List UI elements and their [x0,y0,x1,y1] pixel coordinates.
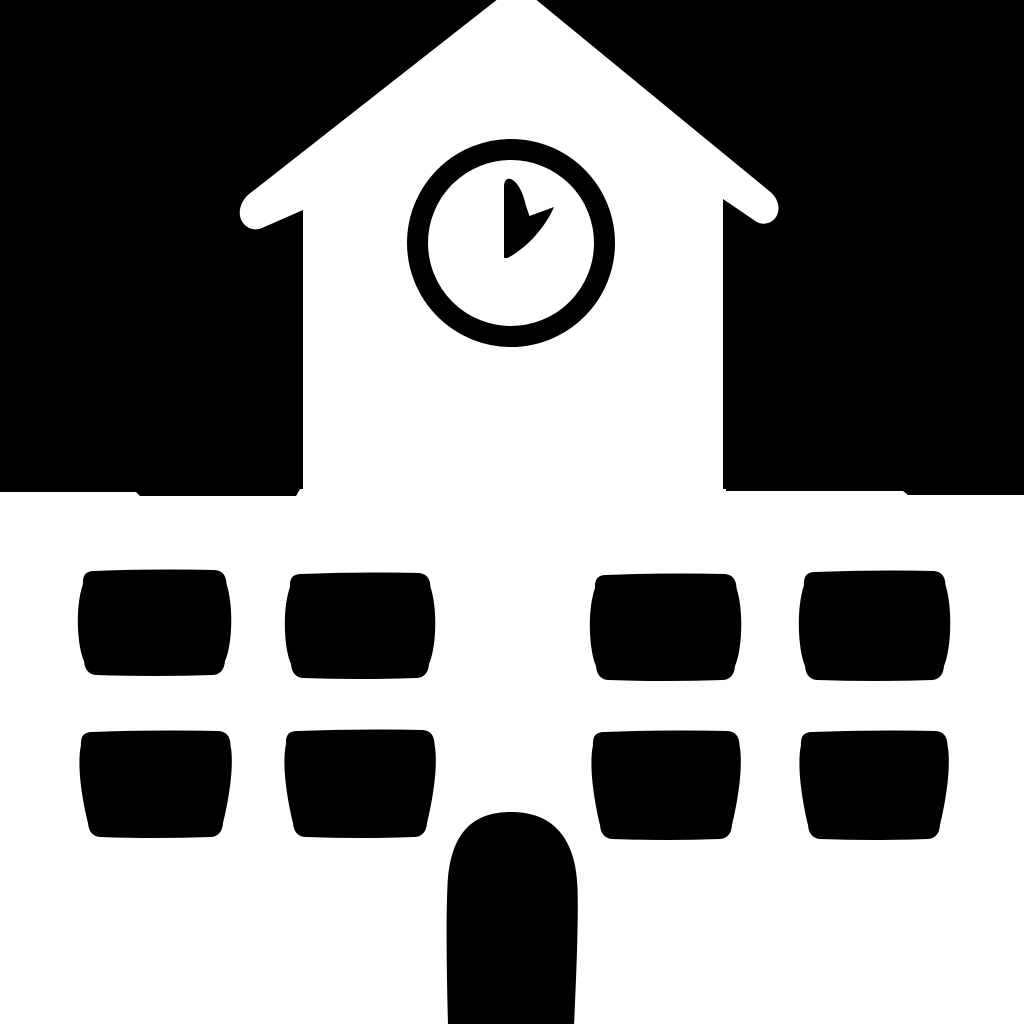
window-r2-c2 [284,729,435,838]
window-r2-c3 [591,730,740,840]
school-building-icon [0,0,1024,1024]
window-r1-c3 [590,573,741,681]
window-r2-c1 [79,730,231,838]
school-icon [0,0,1024,1024]
window-r1-c1 [78,569,231,676]
window-r1-c2 [285,572,435,679]
window-r1-c4 [799,570,950,681]
window-r2-c4 [799,730,948,840]
door [447,812,578,1024]
